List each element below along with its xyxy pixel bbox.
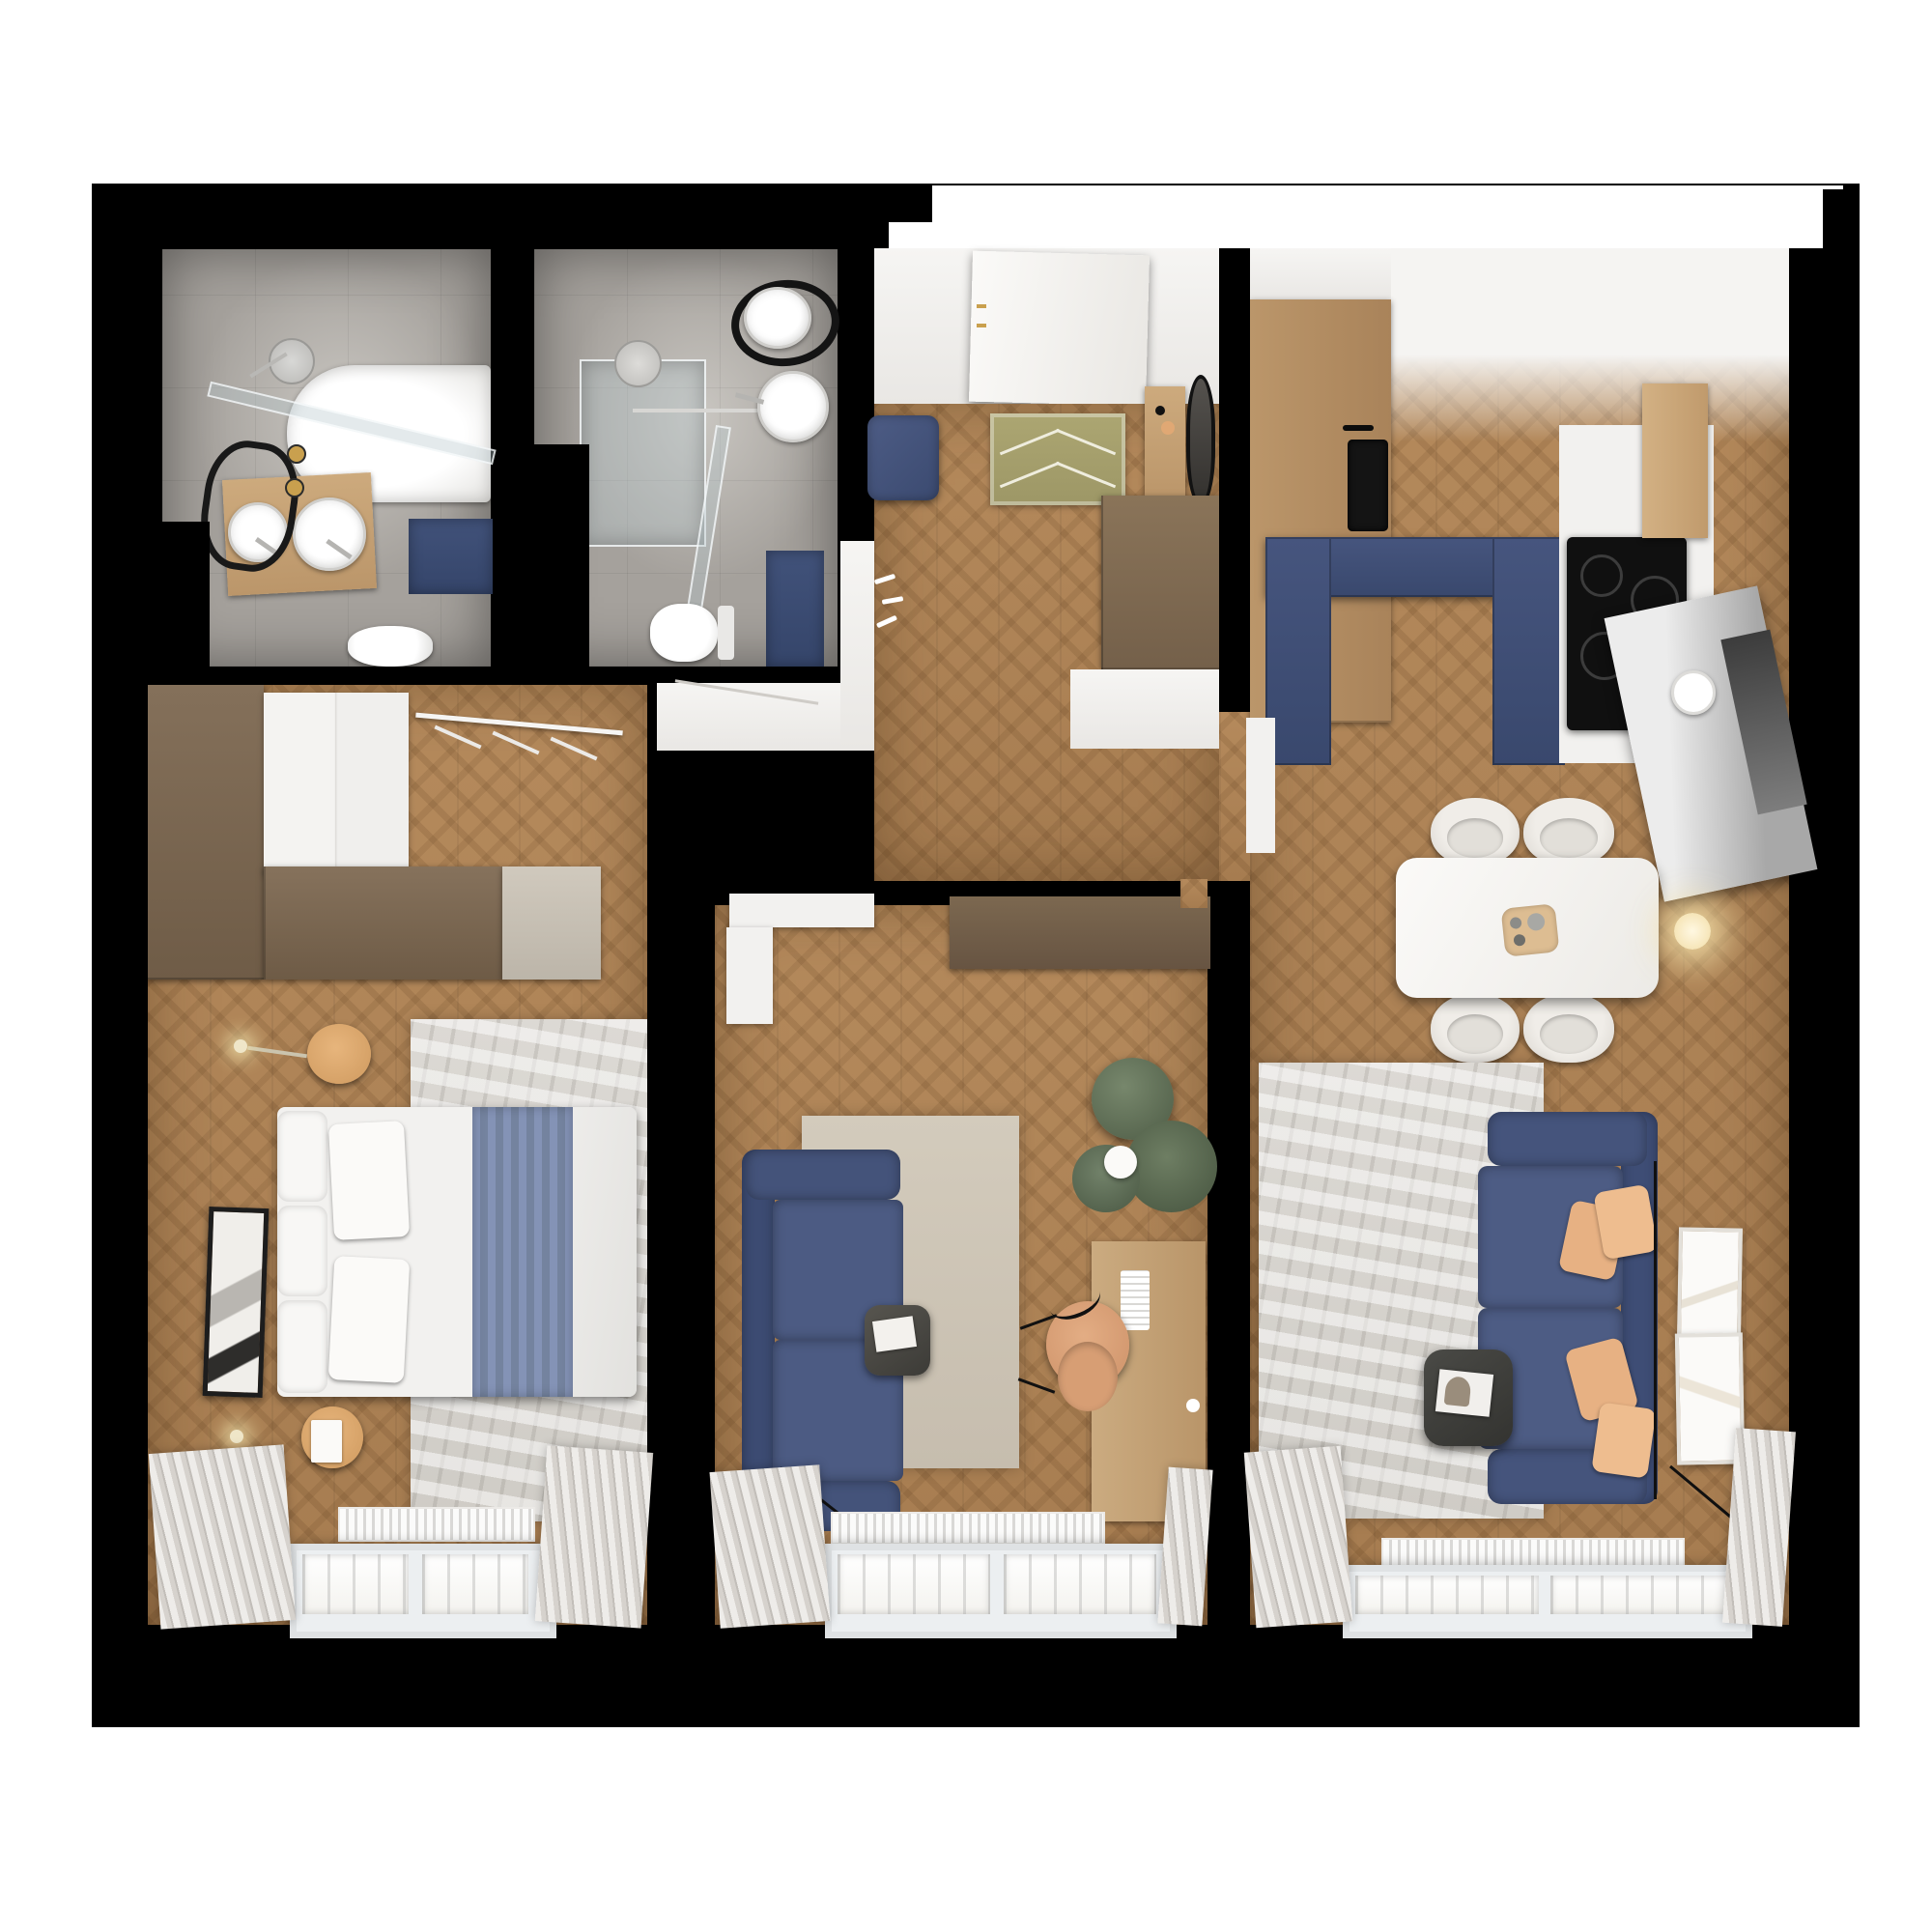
headboard-cushion — [277, 1111, 327, 1202]
tray-item — [1510, 917, 1522, 929]
bedroom-door-opening — [657, 683, 840, 751]
plant-foliage — [1125, 1121, 1217, 1212]
bath-mat-blue-1 — [409, 519, 493, 594]
tray-item — [1526, 912, 1546, 931]
bath2-door-opening — [840, 541, 874, 751]
toilet-1 — [348, 626, 433, 667]
sofa-armrest — [1488, 1112, 1647, 1166]
magazines-stack — [1435, 1369, 1493, 1417]
bathroom-2 — [534, 249, 838, 667]
entry-hall — [874, 248, 1219, 881]
pedestal-sink — [757, 371, 829, 442]
hall-wardrobe — [1101, 496, 1219, 669]
orange-pillow — [1593, 1184, 1658, 1261]
dining-chair — [1431, 993, 1520, 1063]
lamp-cable — [1654, 1161, 1657, 1499]
magazine-cover-photo — [1444, 1376, 1472, 1407]
door-hinge-2 — [977, 324, 986, 327]
kitchen-cabinet-right-col — [1492, 537, 1565, 765]
bathroom-1 — [162, 249, 491, 667]
blue-pouf — [867, 415, 939, 500]
living-curtain-right — [1722, 1428, 1796, 1627]
wood-tray — [1501, 903, 1560, 957]
rug-chevron-line — [1000, 462, 1060, 489]
hanger — [492, 731, 539, 755]
office-curtain-left — [709, 1464, 830, 1629]
bedroom — [148, 685, 647, 1625]
mouse — [1186, 1399, 1200, 1412]
bedroom-radiator — [338, 1507, 535, 1542]
rug-chevron-line — [1000, 429, 1060, 456]
dresser-beige-block — [502, 867, 601, 980]
shower-head-2 — [614, 340, 662, 387]
dresser-bar — [264, 867, 502, 980]
dining-chair — [1431, 798, 1520, 866]
wall-sconce-bottom — [230, 1430, 243, 1443]
wall-cut-bath1 — [145, 522, 210, 667]
exterior-notch — [889, 185, 1843, 248]
dining-chair — [1523, 993, 1614, 1063]
coat-hook-knob — [1155, 406, 1165, 415]
wardrobe-white-fronts — [264, 693, 409, 874]
wall-sconce-top — [234, 1039, 247, 1053]
wall-stub-left — [889, 185, 932, 222]
wardrobe-wood-column — [148, 685, 264, 980]
toilet-2-bowl — [650, 604, 718, 662]
shoe-console — [1145, 386, 1185, 498]
living-window — [1343, 1565, 1752, 1638]
living-curtain-left — [1244, 1446, 1352, 1629]
door-leaf-line — [675, 679, 819, 704]
bath-mat-blue-2 — [766, 551, 824, 667]
loveseat-armrest — [746, 1150, 900, 1200]
bedroom-art-frame — [203, 1207, 270, 1398]
round-basin — [744, 287, 811, 349]
office-door-opening — [1180, 879, 1207, 908]
white-vase — [1104, 1146, 1137, 1179]
bed-runner-blue — [472, 1107, 573, 1397]
chair-leg — [1018, 1378, 1056, 1394]
office-white-cabinet — [726, 927, 773, 1024]
wall-lamp-glow — [1674, 913, 1711, 950]
office-window — [825, 1544, 1177, 1638]
book-on-nightstand — [311, 1420, 342, 1463]
living-left-wall-panel — [1246, 718, 1275, 853]
entry-door — [969, 251, 1150, 407]
tall-oval-mirror — [1186, 375, 1215, 506]
magazine — [872, 1316, 917, 1352]
entry-rug — [990, 413, 1125, 505]
tall-pantry — [1642, 384, 1708, 538]
kitchen-living-zone — [1250, 248, 1789, 1625]
bed-pillow — [328, 1256, 411, 1383]
bedroom-window — [290, 1544, 556, 1638]
rug-chevron-line — [1056, 429, 1116, 456]
living-sofa — [1473, 1112, 1658, 1504]
office-radiator — [831, 1512, 1105, 1545]
tray-item — [1513, 934, 1525, 947]
office-curtain-right — [1157, 1467, 1212, 1627]
gold-knob-2 — [285, 478, 304, 497]
sconce-arm-top — [247, 1046, 307, 1059]
rug-chevron-line — [1056, 462, 1116, 489]
nightstand-top — [307, 1024, 371, 1084]
wall-console-shelf — [950, 896, 1210, 969]
kitchen-black-sink — [1348, 440, 1388, 531]
wall-cut-bath2 — [534, 444, 589, 667]
hanger — [434, 725, 481, 750]
gold-knob-1 — [287, 444, 306, 464]
hanger — [550, 737, 597, 761]
vessel-sink-2 — [293, 497, 366, 571]
living-art-frame — [1677, 1227, 1743, 1339]
burner — [1580, 554, 1623, 597]
home-office — [715, 905, 1207, 1625]
kitchen-wall-glare — [1391, 248, 1789, 441]
bedroom-curtain-right — [535, 1445, 653, 1628]
console-knob-peach — [1161, 421, 1175, 435]
bedroom-curtain-left — [149, 1444, 296, 1629]
office-white-shelf — [729, 894, 874, 927]
shower-enclosure — [580, 359, 706, 547]
bed-pillow — [328, 1121, 410, 1240]
headboard-cushion — [277, 1206, 327, 1296]
door-hinge-1 — [977, 304, 986, 308]
headboard-cushion — [277, 1300, 327, 1393]
hall-alcove-wall — [1070, 669, 1219, 749]
wall-stub-right — [1823, 189, 1843, 249]
dining-chair — [1523, 798, 1614, 866]
counter-round-sink — [1671, 670, 1716, 715]
toilet-2-cistern — [718, 606, 734, 660]
kitchen-cabinet-left-col — [1265, 537, 1331, 765]
chair-seat — [1058, 1342, 1118, 1411]
orange-pillow — [1591, 1402, 1656, 1478]
floor-plan-canvas — [92, 184, 1860, 1727]
kitchen-faucet — [1343, 425, 1374, 431]
bed — [277, 1107, 637, 1397]
